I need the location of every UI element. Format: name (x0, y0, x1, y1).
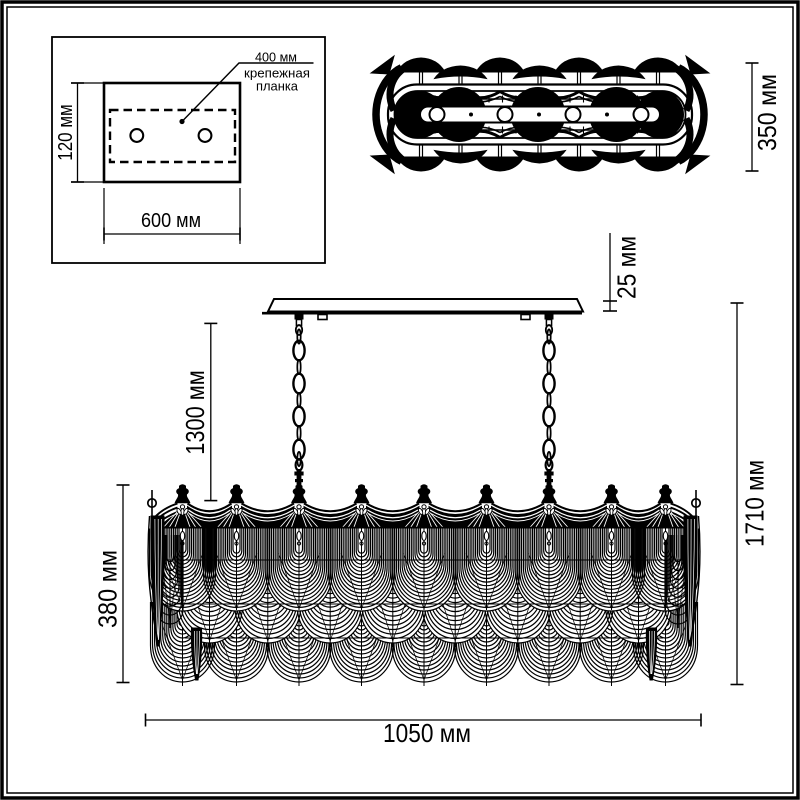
svg-text:планка: планка (256, 79, 299, 94)
svg-text:350 мм: 350 мм (752, 74, 782, 151)
svg-text:1050 мм: 1050 мм (383, 718, 471, 748)
svg-text:600 мм: 600 мм (141, 210, 201, 232)
svg-text:1300 мм: 1300 мм (180, 370, 210, 455)
svg-text:1710 мм: 1710 мм (740, 460, 770, 547)
svg-text:380 мм: 380 мм (93, 550, 123, 628)
svg-text:400 мм: 400 мм (255, 50, 297, 65)
svg-text:120 мм: 120 мм (55, 104, 77, 161)
svg-text:25 мм: 25 мм (612, 236, 642, 299)
